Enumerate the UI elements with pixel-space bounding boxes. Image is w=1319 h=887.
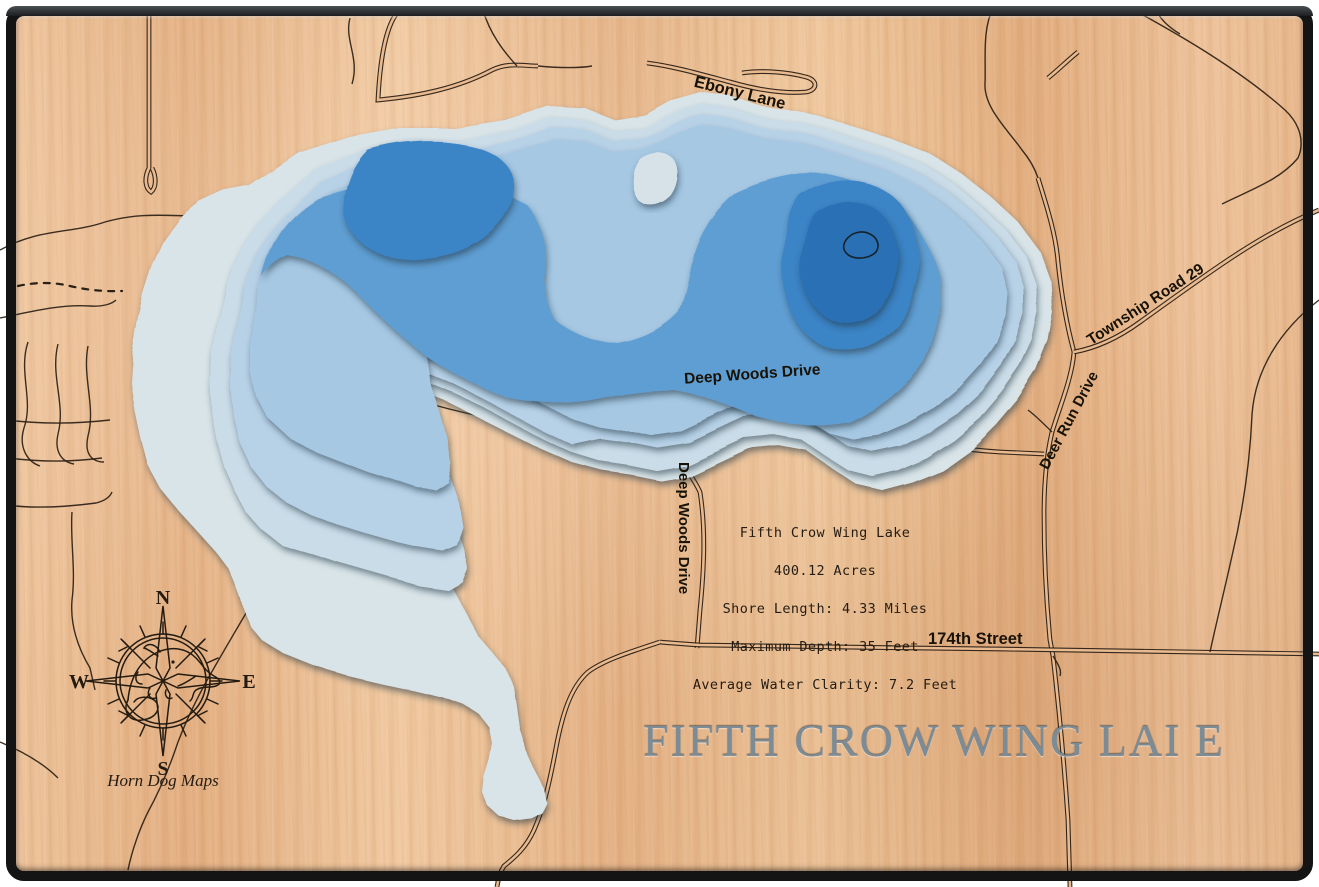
lake-info-name: Fifth Crow Wing Lake: [740, 525, 911, 541]
road-label-deep-woods-drive-vertical: Deep Woods Drive: [675, 462, 692, 594]
road-line: [128, 586, 262, 870]
road-line: [1028, 410, 1052, 432]
road-line: [8, 458, 102, 461]
road-line: [0, 300, 116, 318]
road-line: [6, 420, 110, 423]
road-line: [1155, 8, 1180, 34]
road-line: [985, 8, 1038, 178]
map-title: FIFTH CROW WING LAI E: [602, 714, 1266, 767]
compass-rose: N E S W Horn Dog Maps: [69, 587, 256, 790]
road-line: [0, 742, 58, 778]
road-line: [483, 10, 517, 66]
compass-north-label: N: [156, 587, 171, 609]
road-line: [6, 492, 112, 507]
road-line: [538, 66, 592, 68]
lake: [130, 92, 1053, 820]
road-line: [1210, 300, 1319, 652]
maker-credit: Horn Dog Maps: [106, 771, 219, 790]
lake-info-clarity: Average Water Clarity: 7.2 Feet: [693, 677, 957, 693]
road-line: [56, 344, 74, 464]
road-line: [349, 18, 355, 84]
lake-info-shore-length: Shore Length: 4.33 Miles: [723, 601, 928, 617]
road-line: [22, 342, 40, 466]
lake-info-box: Fifth Crow Wing Lake 400.12 Acres Shore …: [692, 524, 958, 695]
lake-info-max-depth: Maximum Depth: 35 Feet: [731, 639, 919, 655]
road-line: [86, 346, 104, 462]
lake-info-acres: 400.12 Acres: [774, 563, 876, 579]
road-line: [1130, 8, 1301, 204]
lake-map-plaque: N E S W Horn Dog Maps Ebony Lane Deep Wo…: [0, 0, 1319, 887]
compass-east-label: E: [242, 671, 255, 693]
compass-west-label: W: [69, 671, 89, 693]
trail-dashed: [18, 283, 122, 291]
road-line: [72, 512, 95, 690]
